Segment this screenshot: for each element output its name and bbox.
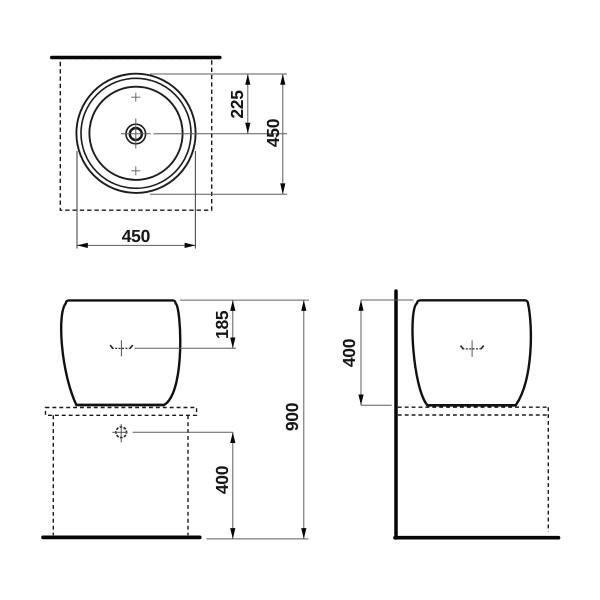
svg-text:185: 185 <box>212 310 232 339</box>
svg-text:900: 900 <box>282 402 302 431</box>
svg-text:450: 450 <box>122 226 151 246</box>
svg-text:400: 400 <box>212 465 232 494</box>
svg-text:400: 400 <box>339 338 359 367</box>
svg-text:225: 225 <box>227 90 247 119</box>
svg-text:450: 450 <box>263 118 283 147</box>
